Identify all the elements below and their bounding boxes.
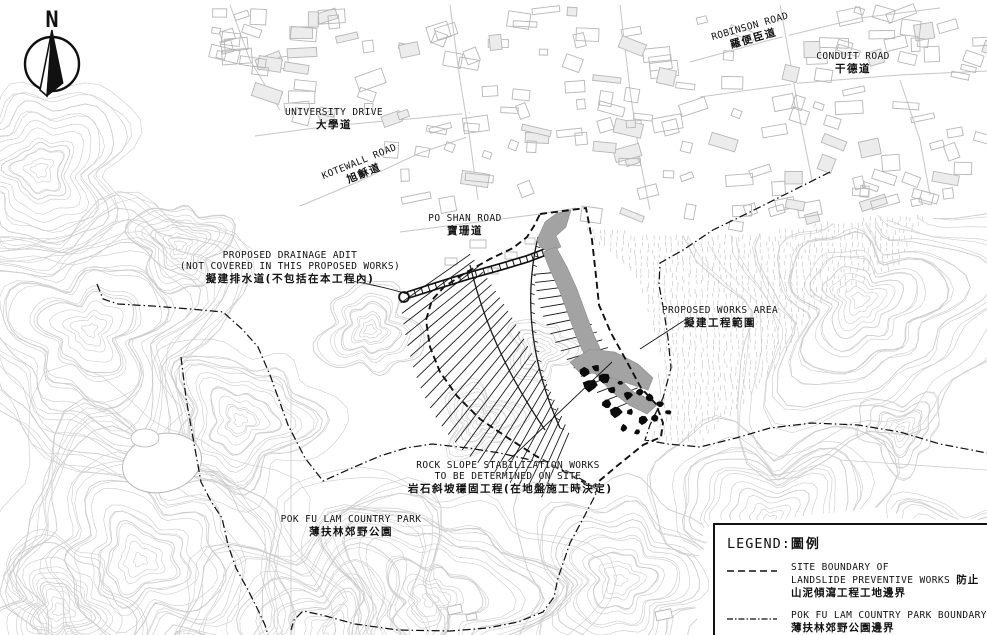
legend-box: LEGEND:圖例 SITE BOUNDARY OF LANDSLIDE PRE… xyxy=(713,523,987,635)
legend-item-text: POK FU LAM COUNTRY PARK BOUNDARY xyxy=(791,610,987,621)
legend-title-en: LEGEND: xyxy=(727,536,791,552)
drainage-adit-line xyxy=(399,248,549,302)
road-name-zh: 干德道 xyxy=(803,63,903,75)
legend-item-zh: 薄扶林郊野公園邊界 xyxy=(791,622,895,634)
legend-title: LEGEND:圖例 xyxy=(727,533,987,552)
road-name-en: UNIVERSITY DRIVE xyxy=(285,107,383,118)
road-label-university-drive: UNIVERSITY DRIVE 大學道 xyxy=(274,108,394,131)
annotation-drainage-adit: PROPOSED DRAINAGE ADIT (NOT COVERED IN T… xyxy=(175,251,405,285)
road-label-conduit: CONDUIT ROAD 干德道 xyxy=(803,52,903,75)
annotation-zh: 擬建工程範圍 xyxy=(655,317,785,329)
label-country-park: POK FU LAM COUNTRY PARK 薄扶林郊野公園 xyxy=(271,515,431,538)
dashed-line-symbol xyxy=(727,568,777,574)
road-name-en: CONDUIT ROAD xyxy=(816,51,889,62)
annotation-zh: 薄扶林郊野公園 xyxy=(271,526,431,538)
legend-item-text: LANDSLIDE PREVENTIVE WORKS xyxy=(791,575,950,586)
north-label: N xyxy=(45,8,58,33)
north-arrow: N xyxy=(25,8,79,96)
annotation-rock-slope: ROCK SLOPE STABILIZATION WORKS TO BE DET… xyxy=(408,461,608,495)
dash-dot-line-symbol xyxy=(727,616,777,622)
site-plan-map: N ROBINSON ROAD 羅便臣道 CONDUIT ROAD 干德道 UN… xyxy=(0,0,987,635)
road-name-en: PO SHAN ROAD xyxy=(428,213,501,224)
legend-item-text: SITE BOUNDARY OF xyxy=(791,562,889,573)
road-name-zh: 大學道 xyxy=(274,119,394,131)
annotation-zh: 擬建排水道(不包括在本工程內) xyxy=(175,273,405,285)
annotation-line: TO BE DETERMINED ON SITE xyxy=(435,471,582,482)
annotation-line: PROPOSED DRAINAGE ADIT xyxy=(223,250,358,261)
annotation-line: ROCK SLOPE STABILIZATION WORKS xyxy=(416,460,600,471)
legend-item-park-boundary: POK FU LAM COUNTRY PARK BOUNDARY 薄扶林郊野公園… xyxy=(727,610,987,635)
annotation-line: (NOT COVERED IN THIS PROPOSED WORKS) xyxy=(180,261,400,272)
legend-item-site-boundary: SITE BOUNDARY OF LANDSLIDE PREVENTIVE WO… xyxy=(727,562,987,600)
annotation-line: PROPOSED WORKS AREA xyxy=(662,305,778,316)
proposed-works-area-shape xyxy=(537,210,658,414)
road-label-po-shan: PO SHAN ROAD 寶珊道 xyxy=(413,214,517,237)
annotation-works-area: PROPOSED WORKS AREA 擬建工程範圍 xyxy=(655,306,785,329)
road-name-zh: 寶珊道 xyxy=(413,225,517,237)
annotation-line: POK FU LAM COUNTRY PARK xyxy=(281,514,422,525)
legend-title-zh: 圖例 xyxy=(791,537,821,552)
annotation-zh: 岩石斜坡穩固工程(在地盤施工時決定) xyxy=(408,483,608,495)
